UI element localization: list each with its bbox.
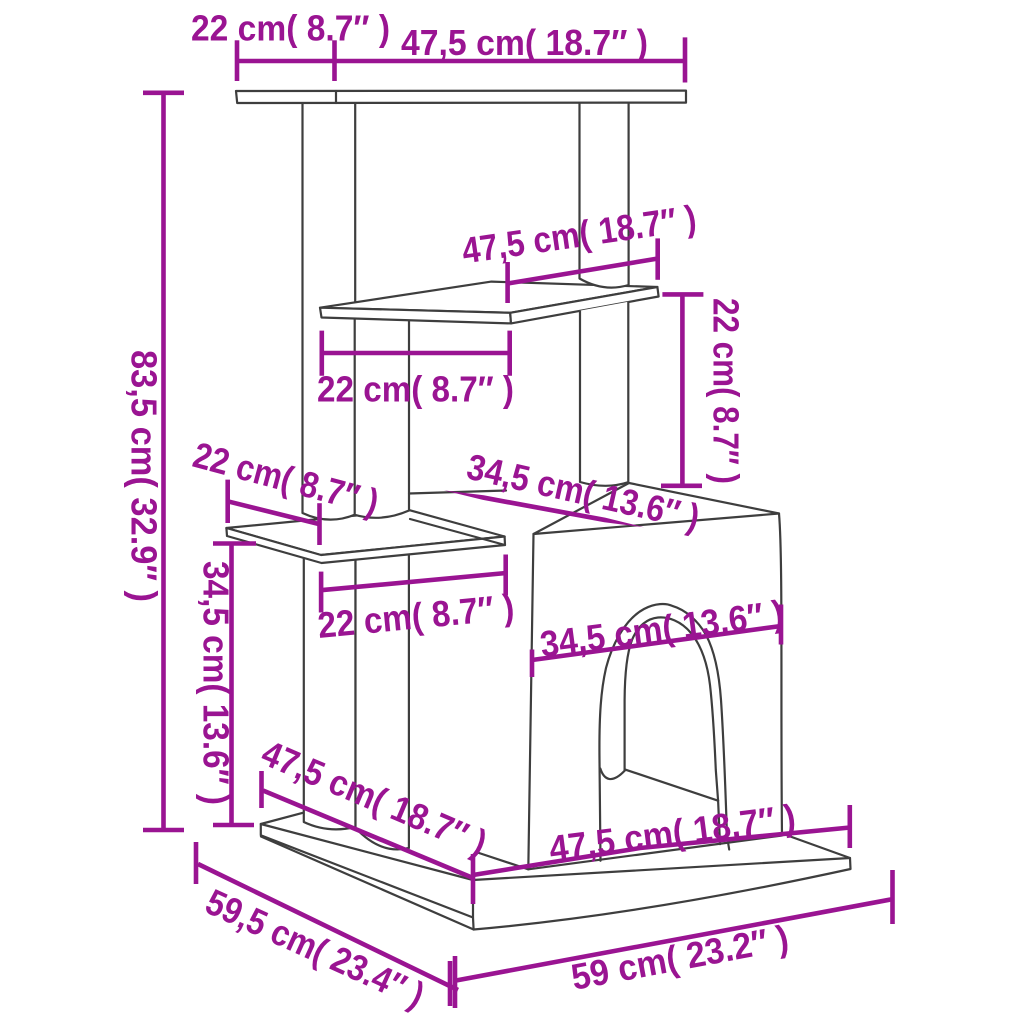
svg-text:22 cm( 8.7″ ): 22 cm( 8.7″ )	[317, 369, 514, 410]
svg-text:34,5 cm( 13.6″ ): 34,5 cm( 13.6″ )	[196, 561, 237, 805]
svg-text:22 cm( 8.7″ ): 22 cm( 8.7″ )	[191, 8, 390, 49]
svg-text:47,5 cm( 18.7″ ): 47,5 cm( 18.7″ )	[401, 22, 648, 63]
svg-text:22 cm( 8.7″ ): 22 cm( 8.7″ )	[706, 298, 747, 484]
svg-text:83,5 cm( 32.9″ ): 83,5 cm( 32.9″ )	[124, 350, 165, 602]
